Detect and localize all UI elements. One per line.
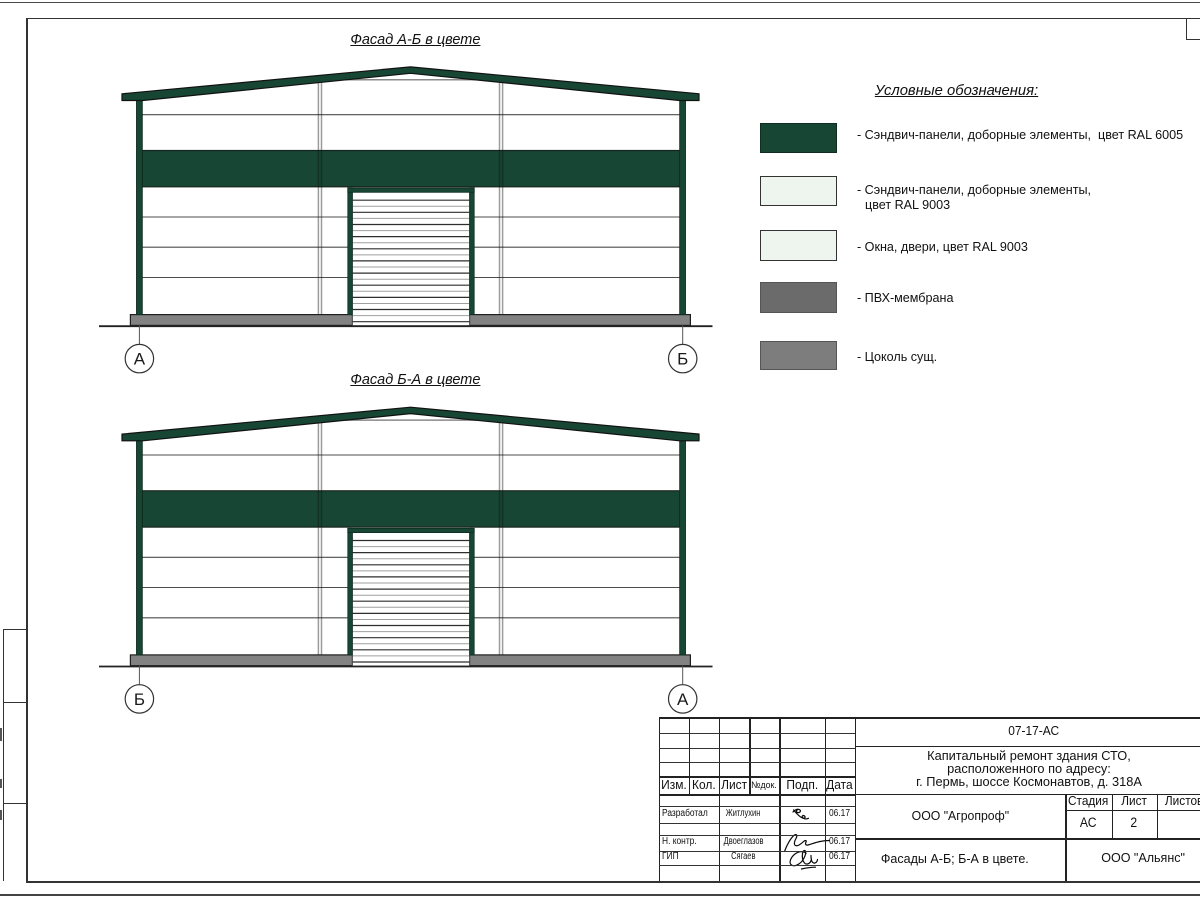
svg-text:Б: Б <box>677 350 688 369</box>
svg-text:А: А <box>677 690 689 709</box>
svg-text:А: А <box>134 350 146 369</box>
svg-text:Б: Б <box>134 690 145 709</box>
